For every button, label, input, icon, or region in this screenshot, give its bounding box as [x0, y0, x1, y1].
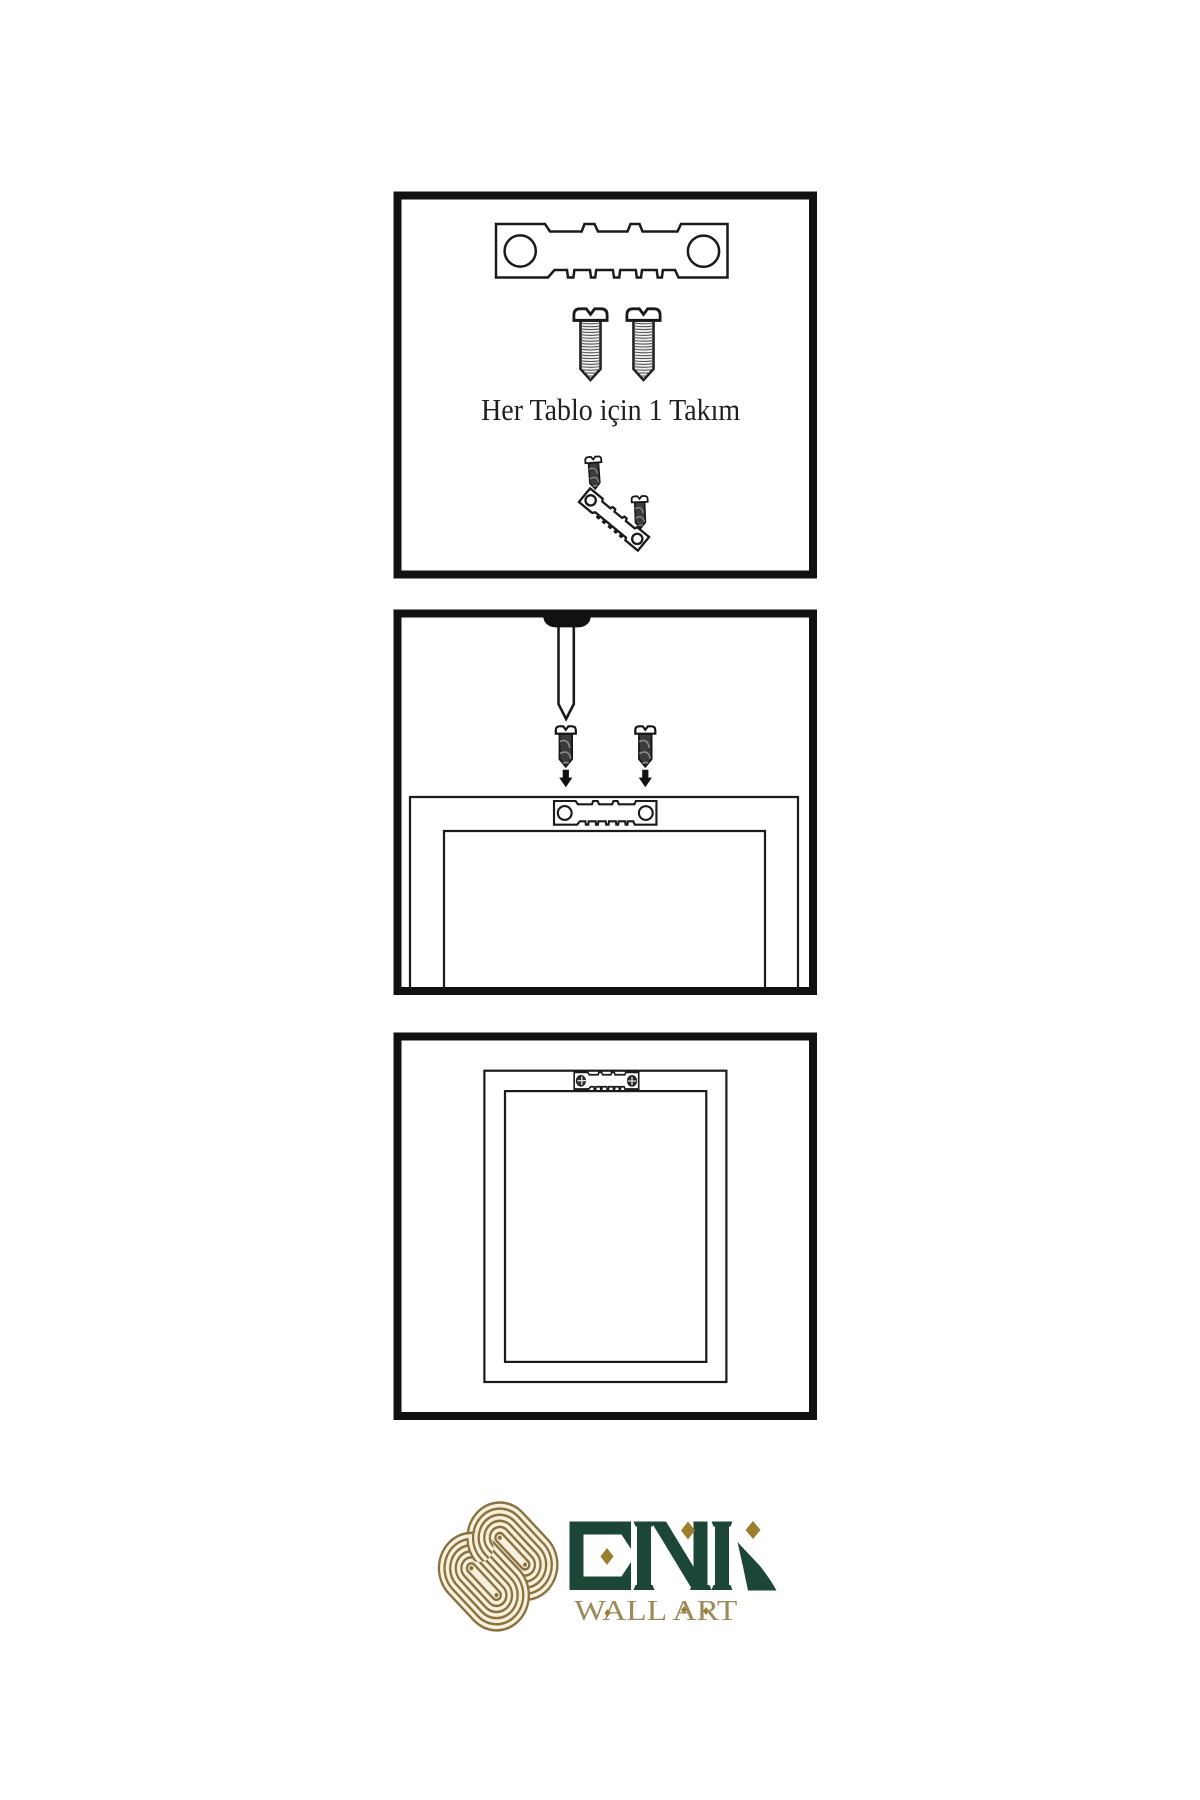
svg-text:Her Tablo için 1 Takım: Her Tablo için 1 Takım	[481, 392, 740, 427]
svg-text:WALL ART: WALL ART	[574, 1595, 737, 1627]
